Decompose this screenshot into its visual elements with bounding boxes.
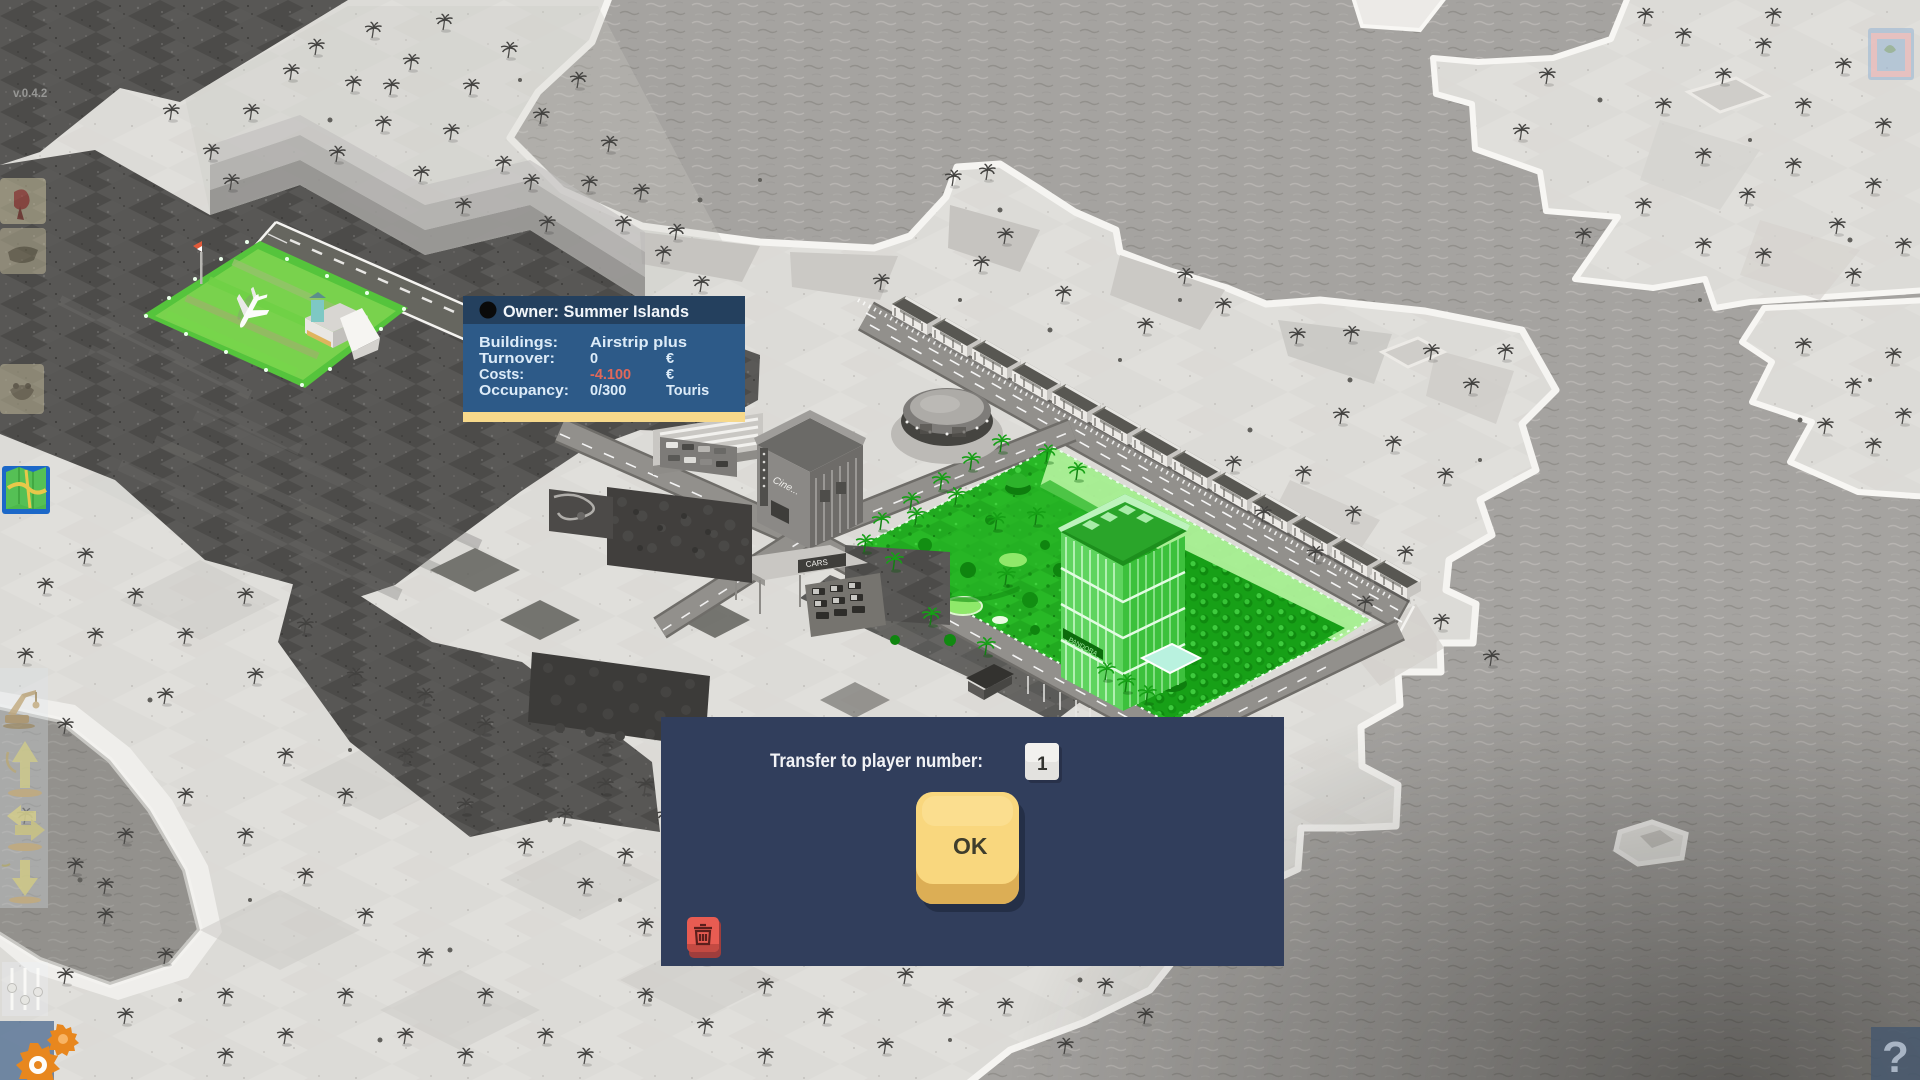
svg-text:Turnover:: Turnover: — [479, 351, 555, 367]
svg-text:Owner: Summer Islands: Owner: Summer Islands — [503, 302, 689, 321]
svg-text:Touris: Touris — [666, 383, 709, 399]
svg-text:€: € — [666, 351, 674, 367]
svg-text:v.0.4.2: v.0.4.2 — [13, 88, 47, 100]
svg-text:Occupancy:: Occupancy: — [479, 383, 569, 399]
svg-text:0/300: 0/300 — [590, 383, 626, 399]
svg-text:Costs:: Costs: — [479, 367, 524, 383]
svg-text:?: ? — [1882, 1033, 1909, 1080]
svg-text:1: 1 — [1037, 754, 1048, 775]
svg-text:Airstrip plus: Airstrip plus — [590, 335, 687, 351]
svg-text:OK: OK — [953, 833, 988, 859]
svg-text:0: 0 — [590, 351, 598, 367]
svg-text:€: € — [666, 367, 674, 383]
svg-text:Transfer to player number:: Transfer to player number: — [770, 750, 983, 772]
svg-text:Buildings:: Buildings: — [479, 335, 558, 351]
svg-text:-4.100: -4.100 — [590, 367, 631, 383]
